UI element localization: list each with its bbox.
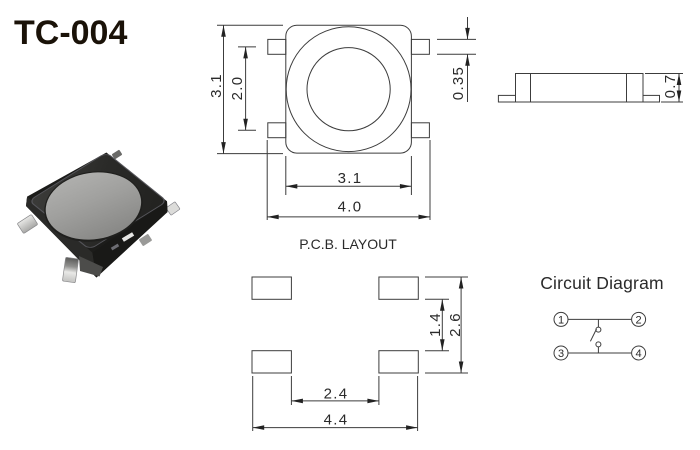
- svg-text:2: 2: [636, 314, 642, 326]
- svg-text:P.C.B. LAYOUT: P.C.B. LAYOUT: [299, 236, 397, 252]
- svg-text:1.4: 1.4: [427, 312, 444, 337]
- svg-text:3.1: 3.1: [338, 170, 363, 187]
- svg-text:2.0: 2.0: [229, 76, 246, 101]
- svg-text:2.6: 2.6: [447, 312, 464, 337]
- svg-text:1: 1: [558, 314, 564, 326]
- svg-text:TC-004: TC-004: [14, 14, 127, 52]
- svg-text:3: 3: [558, 348, 564, 360]
- svg-text:3.1: 3.1: [208, 73, 225, 98]
- svg-text:4.0: 4.0: [338, 199, 363, 216]
- svg-text:0.7: 0.7: [662, 74, 679, 99]
- svg-text:2.4: 2.4: [324, 386, 349, 403]
- svg-text:4.4: 4.4: [324, 412, 349, 429]
- svg-text:4: 4: [636, 348, 642, 360]
- svg-text:0.35: 0.35: [450, 66, 467, 100]
- svg-text:Circuit Diagram: Circuit Diagram: [540, 273, 664, 293]
